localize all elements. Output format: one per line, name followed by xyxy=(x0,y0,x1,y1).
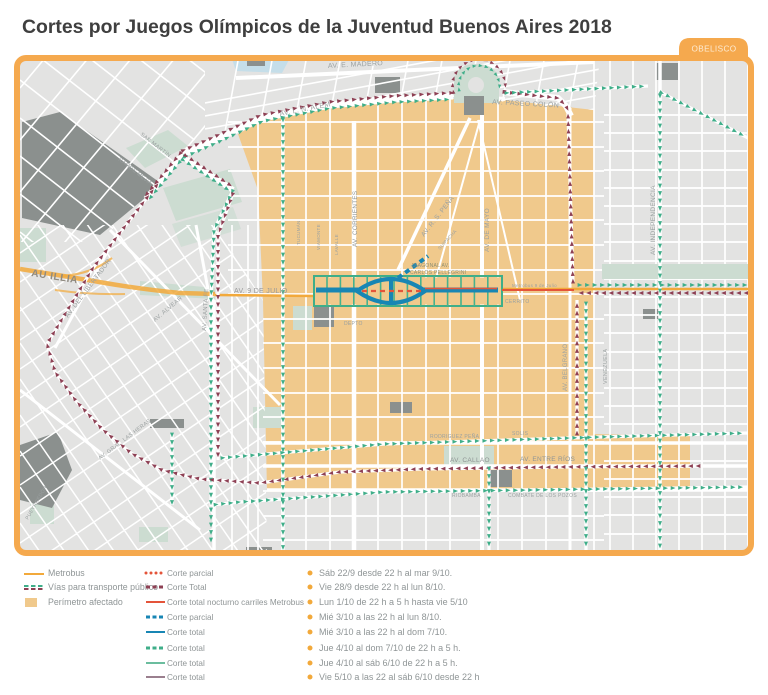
svg-text:Vie 28/9 desde 22 h al lun 8/1: Vie 28/9 desde 22 h al lun 8/10. xyxy=(319,582,445,592)
svg-text:Corte parcial: Corte parcial xyxy=(167,613,214,622)
svg-text:Lun 1/10 de 22 h a 5 h hasta v: Lun 1/10 de 22 h a 5 h hasta vie 5/10 xyxy=(319,597,468,607)
svg-text:AV. 9 DE JULIO: AV. 9 DE JULIO xyxy=(234,288,288,295)
svg-text:DIAGONAL AV.: DIAGONAL AV. xyxy=(412,263,450,269)
svg-text:OBELISCO: OBELISCO xyxy=(691,45,736,54)
svg-text:Mié 3/10 a las 22 h al dom 7/: Mié 3/10 a las 22 h al dom 7/10. xyxy=(319,627,447,637)
svg-text:LAVALLE: LAVALLE xyxy=(334,234,339,255)
svg-text:Corte parcial: Corte parcial xyxy=(167,569,214,578)
svg-text:Metrobus 9 de Julio: Metrobus 9 de Julio xyxy=(512,283,557,288)
svg-text:CERRITO: CERRITO xyxy=(505,299,530,305)
svg-text:TUCUMÁN: TUCUMÁN xyxy=(295,220,301,245)
svg-text:Metrobus: Metrobus xyxy=(48,568,85,578)
svg-text:Cortes por Juegos Olímpicos de: Cortes por Juegos Olímpicos de la Juvent… xyxy=(22,16,612,38)
svg-text:Corte total: Corte total xyxy=(167,659,205,668)
svg-text:RIOBAMBA: RIOBAMBA xyxy=(452,493,481,499)
svg-text:Corte Total: Corte Total xyxy=(167,583,207,592)
svg-text:AV. ENTRE RÍOS: AV. ENTRE RÍOS xyxy=(520,454,575,463)
svg-text:Corte total nocturno carriles: Corte total nocturno carriles Metrobus xyxy=(167,598,304,607)
svg-text:RODRIGUEZ PEÑA: RODRIGUEZ PEÑA xyxy=(430,433,480,440)
svg-text:Corte total: Corte total xyxy=(167,628,205,637)
svg-text:AV. CORRIENTES: AV. CORRIENTES xyxy=(352,191,359,247)
svg-text:Jue 4/10 al dom 7/10 de 22 h a: Jue 4/10 al dom 7/10 de 22 h a 5 h. xyxy=(319,643,461,653)
svg-text:Jue 4/10 al sáb 6/10 de 22 h a: Jue 4/10 al sáb 6/10 de 22 h a 5 h. xyxy=(319,658,458,668)
svg-text:AV. BELGRANO: AV. BELGRANO xyxy=(563,344,569,391)
svg-text:CARLOS PELLEGRINI: CARLOS PELLEGRINI xyxy=(410,270,467,276)
svg-text:SOLIS: SOLIS xyxy=(512,431,529,437)
svg-text:AV. DE MAYO: AV. DE MAYO xyxy=(484,208,491,252)
svg-text:DEPTO: DEPTO xyxy=(344,321,363,327)
svg-text:Sáb 22/9 desde 22 h al mar 9/1: Sáb 22/9 desde 22 h al mar 9/10. xyxy=(319,568,452,578)
svg-text:AV. INDEPENDENCIA: AV. INDEPENDENCIA xyxy=(650,185,657,255)
svg-text:VENEZUELA: VENEZUELA xyxy=(603,349,609,384)
svg-text:Corte total: Corte total xyxy=(167,644,205,653)
svg-text:Vías para transporte público: Vías para transporte público xyxy=(48,582,158,592)
svg-text:Perímetro afectado: Perímetro afectado xyxy=(48,597,123,607)
svg-text:VIAMONTE: VIAMONTE xyxy=(316,224,321,250)
svg-text:COMBATE DE LOS POZOS: COMBATE DE LOS POZOS xyxy=(508,493,577,499)
svg-text:Vie 5/10 a las 22 al sáb 6/10: Vie 5/10 a las 22 al sáb 6/10 desde 22 h xyxy=(319,672,479,682)
svg-text:AV. CALLAO: AV. CALLAO xyxy=(450,457,490,464)
svg-text:Corte total: Corte total xyxy=(167,673,205,682)
svg-text:Mié 3/10 a las 22 h al lun 8/1: Mié 3/10 a las 22 h al lun 8/10. xyxy=(319,612,442,622)
